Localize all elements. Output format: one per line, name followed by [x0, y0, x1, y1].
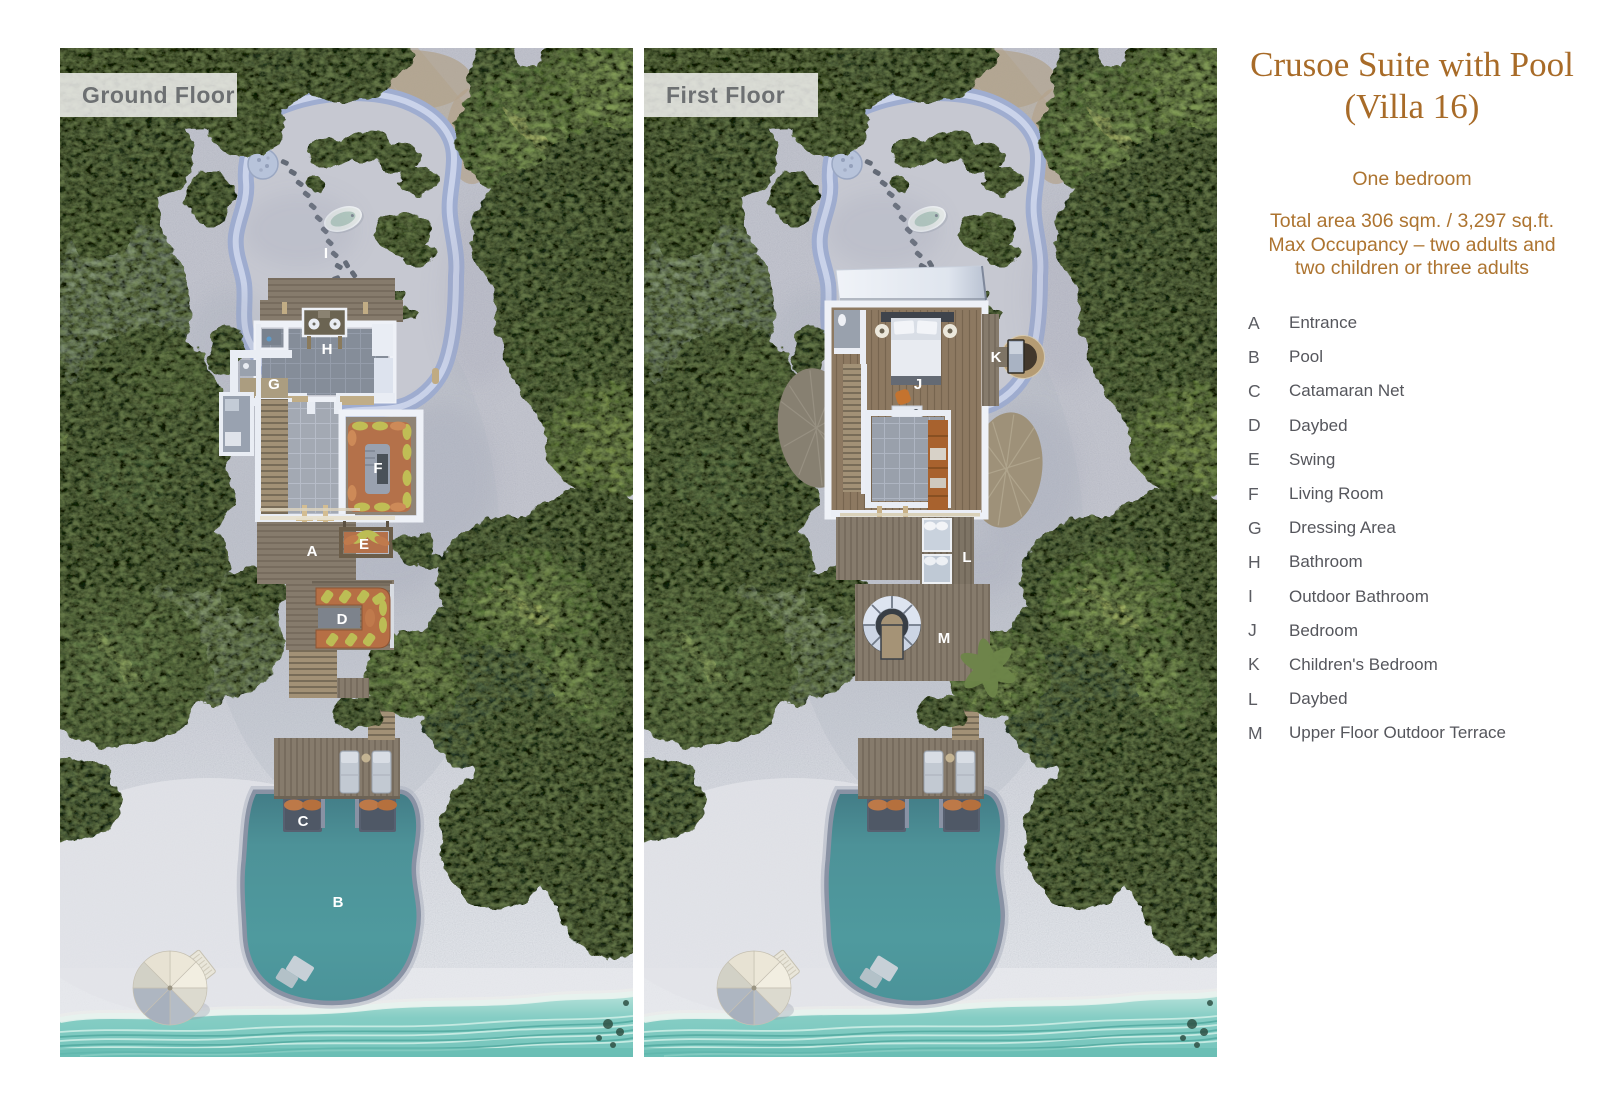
svg-text:E: E: [359, 536, 369, 553]
svg-text:C: C: [298, 813, 309, 830]
svg-text:K: K: [991, 349, 1002, 366]
svg-text:B: B: [333, 894, 344, 911]
svg-text:I: I: [324, 245, 328, 262]
svg-text:J: J: [914, 376, 922, 393]
svg-text:M: M: [938, 630, 951, 647]
svg-text:H: H: [322, 341, 333, 358]
svg-text:L: L: [962, 549, 971, 566]
svg-text:G: G: [268, 376, 280, 393]
svg-text:D: D: [337, 611, 348, 628]
svg-text:F: F: [373, 460, 382, 477]
svg-text:A: A: [307, 543, 318, 560]
